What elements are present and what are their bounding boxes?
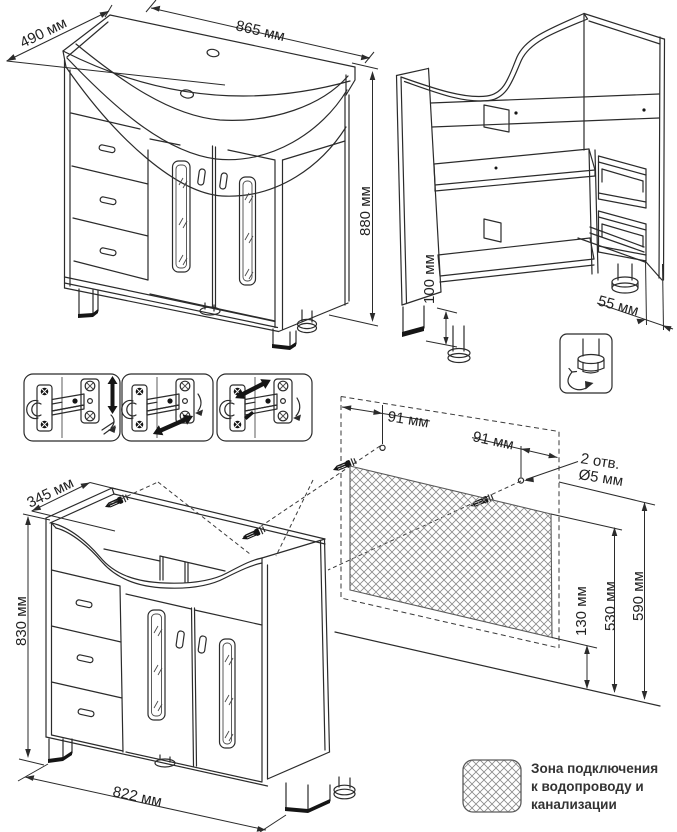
svg-text:830 мм: 830 мм (13, 596, 30, 646)
svg-text:530 мм: 530 мм (602, 581, 619, 631)
svg-text:канализации: канализации (531, 797, 617, 812)
svg-text:880 мм: 880 мм (357, 186, 374, 236)
svg-text:100 мм: 100 мм (421, 254, 438, 304)
svg-text:к водопроводу и: к водопроводу и (531, 779, 644, 794)
svg-text:130 мм: 130 мм (573, 586, 590, 636)
svg-text:590 мм: 590 мм (630, 571, 647, 621)
svg-text:Зона подключения: Зона подключения (531, 761, 658, 776)
